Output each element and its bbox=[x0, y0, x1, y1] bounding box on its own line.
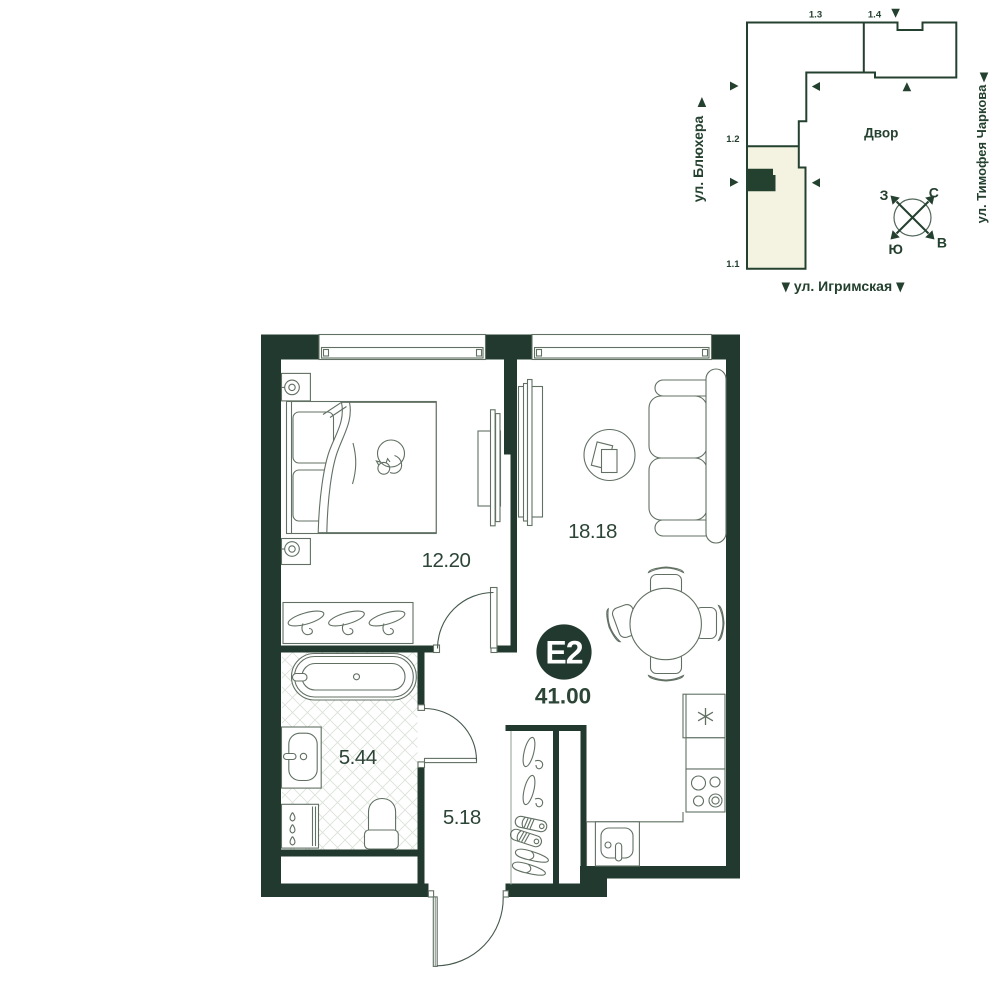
svg-text:5.18: 5.18 bbox=[443, 806, 481, 829]
svg-text:1.1: 1.1 bbox=[726, 259, 740, 270]
svg-text:Двор: Двор bbox=[864, 126, 898, 141]
svg-text:41.00: 41.00 bbox=[535, 684, 591, 709]
svg-text:ул. Блюхера: ул. Блюхера bbox=[690, 116, 706, 203]
svg-text:18.18: 18.18 bbox=[568, 520, 617, 543]
svg-text:ул. Игримская: ул. Игримская bbox=[794, 278, 892, 294]
svg-text:ул. Тимофея Чаркова: ул. Тимофея Чаркова bbox=[974, 84, 989, 223]
svg-text:З: З bbox=[880, 187, 889, 203]
svg-text:E2: E2 bbox=[545, 635, 582, 671]
svg-text:12.20: 12.20 bbox=[422, 549, 471, 572]
svg-text:1.3: 1.3 bbox=[809, 10, 822, 21]
svg-text:1.4: 1.4 bbox=[868, 10, 882, 21]
svg-text:5.44: 5.44 bbox=[339, 746, 377, 769]
svg-text:С: С bbox=[929, 185, 939, 201]
svg-text:1.2: 1.2 bbox=[726, 134, 739, 145]
svg-text:В: В bbox=[937, 235, 947, 251]
svg-text:Ю: Ю bbox=[888, 241, 902, 257]
